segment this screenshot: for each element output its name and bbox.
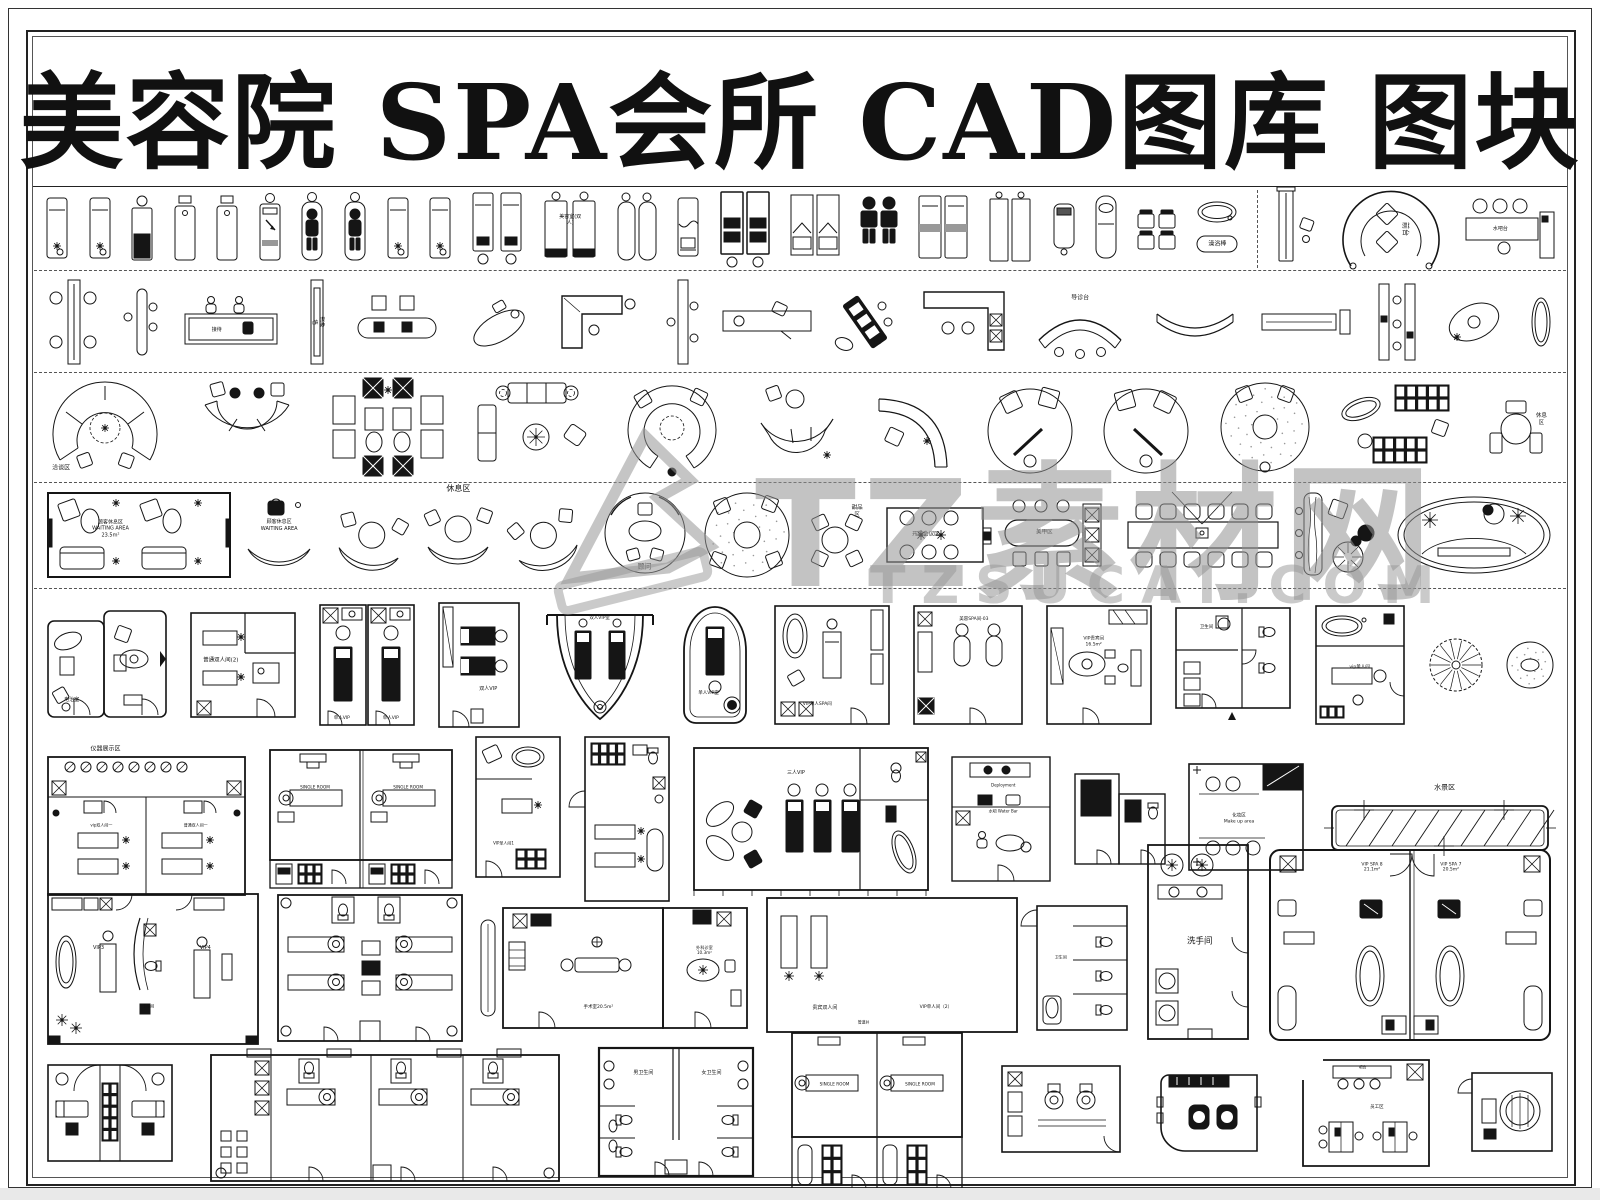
cad-block-bedPerson xyxy=(342,194,368,264)
cad-block-curveDesk: 前台 xyxy=(1335,178,1447,280)
cad-block-deskdark xyxy=(1155,1069,1263,1157)
cad-block-rugRound2 xyxy=(1100,379,1192,475)
cad-block-tubSet: 澡浴棒 xyxy=(1194,200,1240,258)
cad-block-wcplan: 卫生间 xyxy=(1172,604,1294,726)
cad-block-dbl: 双人VIP xyxy=(435,599,523,731)
cad-block-single2: SINGLE ROOMSINGLE ROOM xyxy=(266,746,456,892)
cad-block-ringSofa xyxy=(620,376,722,478)
cad-block-crescentBench: 顾客休息区 WAITING AREA xyxy=(238,487,320,583)
symbol-row-waiting: 顾客休息区 WAITING AREA 23.5m²顾客休息区 WAITING A… xyxy=(44,486,1556,584)
cad-block-arcBench xyxy=(1151,300,1239,344)
symbol-row-rooms-1: 电治室普通双人间(2)单人VIP单人VIP双人VIP双人VIP室单人VIP室VI… xyxy=(44,598,1556,732)
cad-block-combo: 电治室 xyxy=(44,607,170,723)
symbol-row-counters: 接待形象墙导诊台 xyxy=(44,276,1556,368)
cad-block-bedPairTall xyxy=(986,193,1034,265)
cad-sheet: 美容院 SPA会所 CAD图库 图块 美容室(双人)澡浴棒前台水吧台 接待形象墙… xyxy=(0,0,1600,1200)
cad-block-ovalBig xyxy=(1392,492,1556,578)
symbol-row-sofas: 洽谈区休息区 xyxy=(44,376,1556,478)
cad-block-surg: 手术室20.5m²外科诊室 10.3m² xyxy=(479,902,751,1034)
row-separator xyxy=(34,588,1566,589)
cad-block-sofaSet xyxy=(474,379,596,475)
cad-block-squareSet xyxy=(327,376,449,478)
cad-block-lockerSet xyxy=(1337,379,1459,475)
cad-block-couple xyxy=(44,1057,176,1169)
section-divider xyxy=(1257,190,1258,268)
cad-block-chairGrid xyxy=(1136,208,1178,250)
cad-block-tiltDesk xyxy=(463,286,535,358)
cad-block-deskL xyxy=(556,288,644,356)
cad-block-confLong xyxy=(1114,492,1292,578)
cad-block-dotRug xyxy=(1217,379,1313,475)
cad-block-rugRound xyxy=(984,379,1076,475)
cad-block-bedPairBand xyxy=(916,194,970,264)
cad-block-bedPairStool xyxy=(470,189,526,269)
cad-block-waitingRoom: 顾客休息区 WAITING AREA 23.5m² xyxy=(44,487,234,583)
cad-block-archU: 双人VIP室 xyxy=(541,601,659,729)
cad-block-dotRugChairs xyxy=(697,487,797,583)
cad-block-deskChair xyxy=(721,301,813,343)
sheet-title: 美容院 SPA会所 CAD图库 图块 xyxy=(40,42,1560,184)
cad-block-big2: 仪器展示区vip双人间一普通双人间一 xyxy=(44,739,249,899)
cad-block-staff: 员工区吧台 xyxy=(1295,1052,1437,1174)
cad-block-bedF xyxy=(427,194,453,264)
cad-block-sq2: 普通双人间(2) xyxy=(187,609,299,721)
cad-block-bedBlanket xyxy=(675,194,701,264)
cad-block-viplounge: VIP贵宾间 16.5m² xyxy=(1043,602,1155,728)
cad-block-bedF xyxy=(87,194,113,264)
cad-block-bedPairFold xyxy=(788,193,842,265)
cad-block-deskStools xyxy=(354,290,442,354)
cad-block-vip1: VIP单人间1 xyxy=(472,733,564,905)
cad-block-dev: Deployment水吧 Water Bar xyxy=(948,753,1054,885)
symbol-row-rooms-3: VIP3VIP4卫生间手术室20.5m²外科诊室 10.3m²undefined… xyxy=(44,898,1556,1038)
cad-block-bedPairRound xyxy=(615,192,659,266)
cad-block-dotrugS xyxy=(1504,639,1556,691)
cad-block-deskL2 xyxy=(918,286,1010,358)
cad-block-beauty: 美容SPA间-03 xyxy=(910,602,1026,728)
cad-block-crescents: 休息区 xyxy=(324,487,592,583)
row-separator xyxy=(34,372,1566,373)
cad-block-bedDark xyxy=(129,194,155,264)
cad-block-bedSq xyxy=(214,194,240,264)
cad-block-threevip: 三人VIP xyxy=(690,740,932,898)
page-edge xyxy=(0,1188,1600,1200)
cad-block-bedBody xyxy=(1093,194,1119,264)
cad-block-vipspa: VIP SPA 8 21.1m²VIP SPA 7 20.5m² xyxy=(1264,836,1556,1048)
cad-block-panelsPair xyxy=(1373,278,1421,366)
cad-block-mf: 男卫生间女卫生间 xyxy=(595,1042,757,1184)
cad-block-wc2 xyxy=(998,1062,1124,1164)
cad-block-deskPersons: 接待 xyxy=(181,292,281,352)
cad-block-mirror xyxy=(1526,293,1556,351)
cad-block-nailBar: 美甲区 xyxy=(997,492,1109,578)
cad-block-spaRoom: VIP单人SPA间 xyxy=(771,602,893,728)
cad-block-bedSmallDark xyxy=(1051,202,1077,256)
cad-block-dessert: 甜品区 xyxy=(801,494,873,576)
cad-block-wc3: 卫生间 xyxy=(1033,902,1131,1034)
cad-block-arcChaise xyxy=(867,381,959,473)
cad-block-longblock xyxy=(207,1037,563,1189)
cad-block-logBench xyxy=(1296,487,1388,583)
cad-block-bedSq xyxy=(172,194,198,264)
cad-block-tiltDark xyxy=(834,286,896,358)
cad-block-bedPerson xyxy=(299,194,325,264)
cad-block-deskSign xyxy=(1260,304,1352,340)
cad-block-triTable: 休息区 xyxy=(1484,391,1556,463)
symbol-row-rooms-4: 男卫生间女卫生间SINGLE ROOMSINGLE ROOM员工区吧台 xyxy=(44,1044,1556,1182)
cad-block-singles2: SINGLE ROOMSINGLE ROOM xyxy=(788,1029,966,1197)
cad-block-washroom: 洗手间 xyxy=(1144,841,1252,1043)
cad-block-tree xyxy=(1425,634,1487,696)
cad-block-panel2c xyxy=(123,285,159,359)
row-separator xyxy=(34,482,1566,483)
cad-block-vip34: VIP3VIP4卫生间 xyxy=(44,884,262,1052)
cad-block-barCounter: 水吧台 xyxy=(1464,198,1556,260)
cad-block-vipsingle: vip单人间 xyxy=(1312,602,1408,728)
cad-block-guest: undefined贵宾双人间VIP单人间（2）管道井 xyxy=(763,892,1021,1044)
cad-block-bedPairLabel: 美容室(双人) xyxy=(542,191,598,267)
cad-block-arcCluster: 洽谈区 xyxy=(44,376,166,478)
cad-block-figures xyxy=(859,195,899,263)
cad-block-arcU xyxy=(191,379,303,475)
cad-block-consultTable: 顾问 xyxy=(597,487,693,583)
cad-block-bedF xyxy=(44,194,70,264)
cad-block-tall2 xyxy=(581,733,673,905)
cad-block-shelfStool xyxy=(1275,183,1319,275)
cad-block-panel4c xyxy=(44,276,102,368)
cad-block-segArc xyxy=(747,379,843,475)
cad-block-twin: 单人VIP单人VIP xyxy=(316,599,418,731)
cad-block-confSmall: 开放会议区 xyxy=(877,492,993,578)
cad-block-ovalPerson xyxy=(1443,291,1505,353)
symbol-row-beds: 美容室(双人)澡浴棒前台水吧台 xyxy=(44,190,1556,268)
cad-block-bedArrow xyxy=(257,194,283,264)
cad-block-panelV: 形象墙 xyxy=(302,276,332,368)
cad-block-ovalRoom: 单人VIP室 xyxy=(676,599,754,731)
cad-block-bedPairDark xyxy=(718,190,772,268)
cad-block-fourbed xyxy=(274,889,466,1047)
cad-block-curveDesk2: 导诊台 xyxy=(1031,288,1129,356)
cad-block-bedF xyxy=(385,194,411,264)
cad-block-panel3c xyxy=(666,276,700,368)
cad-block-smallsq xyxy=(1468,1069,1556,1157)
